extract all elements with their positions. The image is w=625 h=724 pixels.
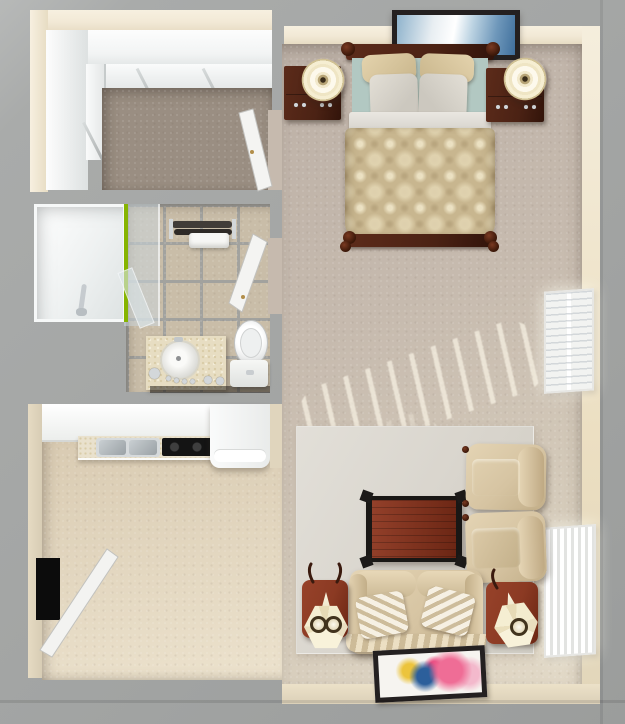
- bed-post: [488, 241, 499, 252]
- vanity-knob: [174, 378, 179, 383]
- floor-art: [373, 645, 488, 703]
- towel-rack-end: [232, 219, 236, 239]
- drawer-knob: [532, 105, 536, 109]
- hex-lamp-left-bulb: [325, 616, 342, 633]
- vanity-knob: [149, 368, 160, 379]
- drawer-knob: [496, 105, 500, 109]
- sink-faucet: [174, 337, 183, 342]
- closet-floor: [102, 88, 272, 190]
- entry-opening: [36, 558, 60, 620]
- floor-plan-render: [0, 0, 625, 724]
- drawer-knob: [320, 103, 324, 107]
- armchair-foot: [462, 514, 469, 521]
- bath-towel: [189, 233, 229, 248]
- towel-rack-end: [169, 219, 173, 239]
- drawer-knob: [302, 103, 306, 107]
- vanity-knob: [182, 379, 187, 384]
- table-lamp-left: [301, 57, 345, 103]
- bed-post: [341, 42, 355, 56]
- refrigerator-handle-band: [214, 450, 266, 462]
- hex-lamp-right-bulb: [510, 618, 528, 636]
- armchair-foot: [462, 446, 469, 453]
- armchair-bottom-seat: [471, 527, 520, 569]
- outer-wall-edge: [600, 0, 603, 724]
- vanity-toe-shadow: [150, 386, 270, 393]
- kitchen-sink-basin: [129, 440, 157, 455]
- kitchen-floor: [42, 440, 282, 680]
- sink-drain: [176, 356, 181, 361]
- window-blinds-top: [544, 288, 594, 393]
- shower-handle: [76, 308, 87, 316]
- bed-footboard: [348, 234, 492, 247]
- drawer-knob: [328, 103, 332, 107]
- drawer-knob: [524, 105, 528, 109]
- table-lamp-right: [503, 56, 547, 102]
- outer-wall-edge: [0, 700, 625, 703]
- coffee-table-top: [372, 500, 456, 558]
- closet-wall-inner-left: [46, 30, 88, 190]
- towel-rack: [172, 221, 232, 228]
- bed-post: [486, 42, 500, 56]
- throw-pillow-left: [355, 590, 410, 640]
- kitchen-wall-bottom-face: [28, 676, 282, 696]
- bed-post: [340, 241, 351, 252]
- vanity-knob: [190, 379, 195, 384]
- cooktop: [162, 438, 212, 456]
- drawer-knob: [294, 103, 298, 107]
- kitchen-sink-basin: [99, 440, 126, 455]
- drawer-knob: [504, 105, 508, 109]
- vanity-knob: [166, 376, 171, 381]
- window-blinds-bottom: [544, 524, 596, 658]
- shower-glass-green-trim: [124, 204, 128, 322]
- vanity-knob: [216, 377, 224, 385]
- armchair-bottom-back: [517, 516, 545, 580]
- closet-wall-top-face: [30, 10, 272, 32]
- toilet-flush-button: [246, 370, 254, 375]
- armchair-foot: [462, 500, 469, 507]
- armchair-top-back: [518, 447, 544, 507]
- vanity-knob: [204, 376, 212, 384]
- toilet-lid-inner: [240, 328, 262, 358]
- armchair-top-seat: [472, 459, 520, 496]
- bed-comforter: [345, 128, 495, 238]
